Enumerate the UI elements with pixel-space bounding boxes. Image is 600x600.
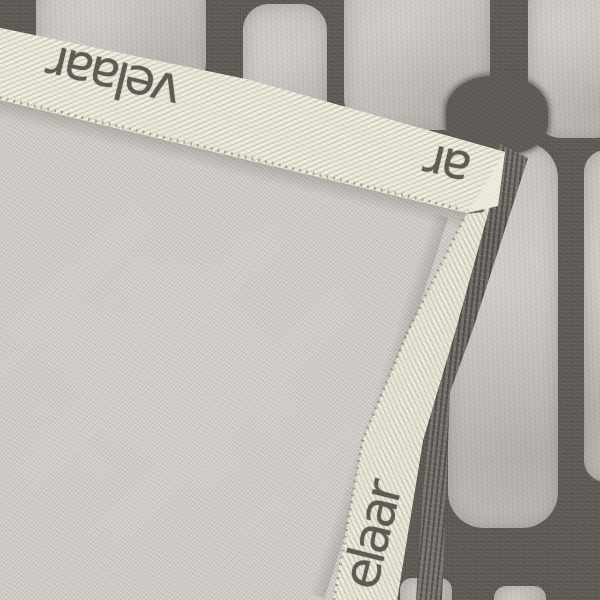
brand-label-corner-fragment: ar <box>417 134 482 197</box>
rug-photo: velaar ar ve elaar <box>0 0 600 600</box>
